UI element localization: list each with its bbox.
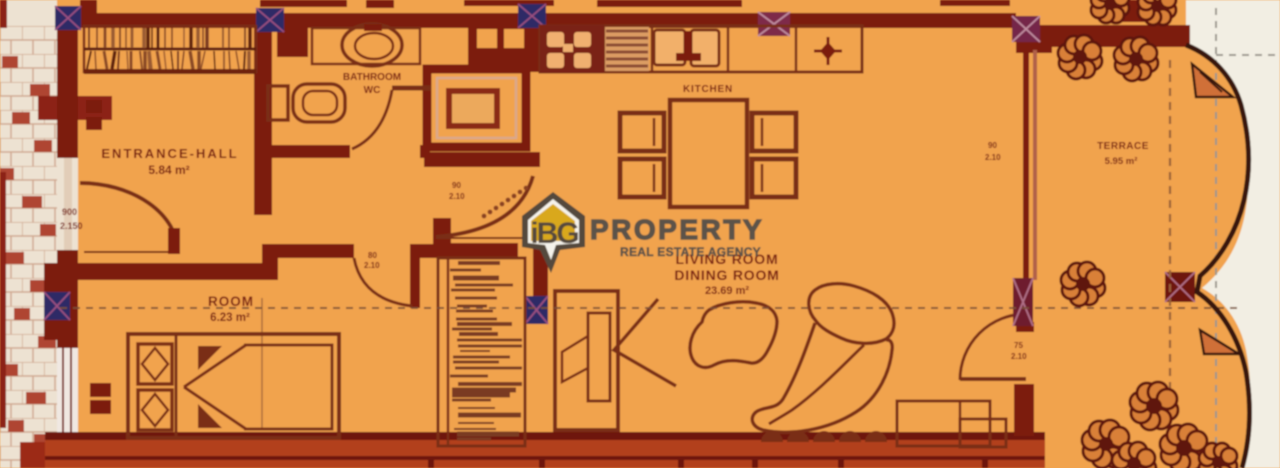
svg-text:KITCHEN: KITCHEN: [683, 84, 733, 95]
svg-text:2.10: 2.10: [364, 261, 380, 270]
svg-text:BATHROOM: BATHROOM: [343, 72, 401, 83]
svg-text:90: 90: [452, 181, 461, 190]
svg-text:900: 900: [62, 207, 77, 217]
svg-text:REAL ESTATE AGENCY: REAL ESTATE AGENCY: [620, 245, 761, 259]
svg-text:ENTRANCE-HALL: ENTRANCE-HALL: [101, 146, 238, 161]
svg-text:2.10: 2.10: [449, 192, 465, 201]
svg-text:2.10: 2.10: [1011, 352, 1027, 361]
svg-text:5.95 m²: 5.95 m²: [1105, 156, 1138, 167]
svg-text:75: 75: [1014, 341, 1023, 350]
svg-text:90: 90: [988, 141, 997, 150]
svg-text:ROOM: ROOM: [208, 294, 254, 309]
svg-text:80: 80: [368, 251, 377, 260]
svg-text:2.150: 2.150: [60, 221, 83, 231]
svg-text:5.84 m²: 5.84 m²: [148, 163, 189, 177]
svg-text:iBG: iBG: [530, 217, 578, 250]
svg-text:DINING ROOM: DINING ROOM: [674, 267, 779, 283]
svg-text:23.69 m²: 23.69 m²: [705, 285, 749, 297]
svg-text:PROPERTY: PROPERTY: [590, 214, 764, 245]
svg-text:WC: WC: [364, 85, 381, 96]
svg-text:2.10: 2.10: [985, 153, 1001, 162]
svg-text:6.23 m²: 6.23 m²: [210, 312, 250, 324]
svg-text:TERRACE: TERRACE: [1097, 141, 1149, 152]
